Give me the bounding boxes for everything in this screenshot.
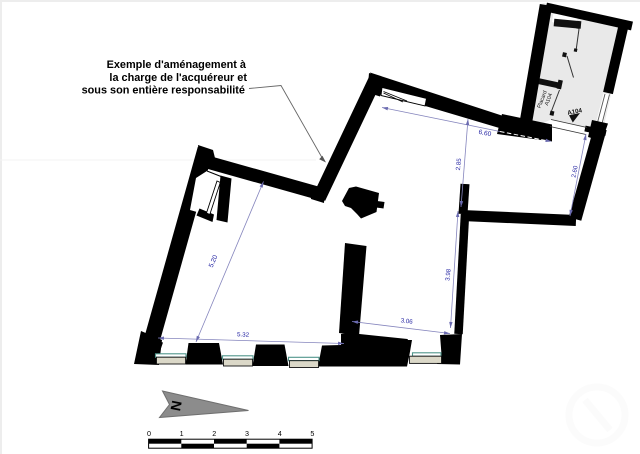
svg-text:0: 0 [147,429,151,438]
svg-text:la charge de l'acquéreur et: la charge de l'acquéreur et [109,72,247,84]
svg-text:1: 1 [180,429,184,438]
svg-text:2.85: 2.85 [455,157,463,170]
svg-text:2: 2 [212,429,216,438]
svg-text:Exemple d'aménagement à: Exemple d'aménagement à [107,59,247,71]
svg-text:3: 3 [245,429,249,438]
svg-text:4: 4 [278,429,282,438]
svg-text:5: 5 [310,429,314,438]
svg-text:3.98: 3.98 [444,268,452,281]
svg-text:5.32: 5.32 [237,331,250,338]
svg-text:sous son entière responsabilit: sous son entière responsabilité [82,84,245,96]
